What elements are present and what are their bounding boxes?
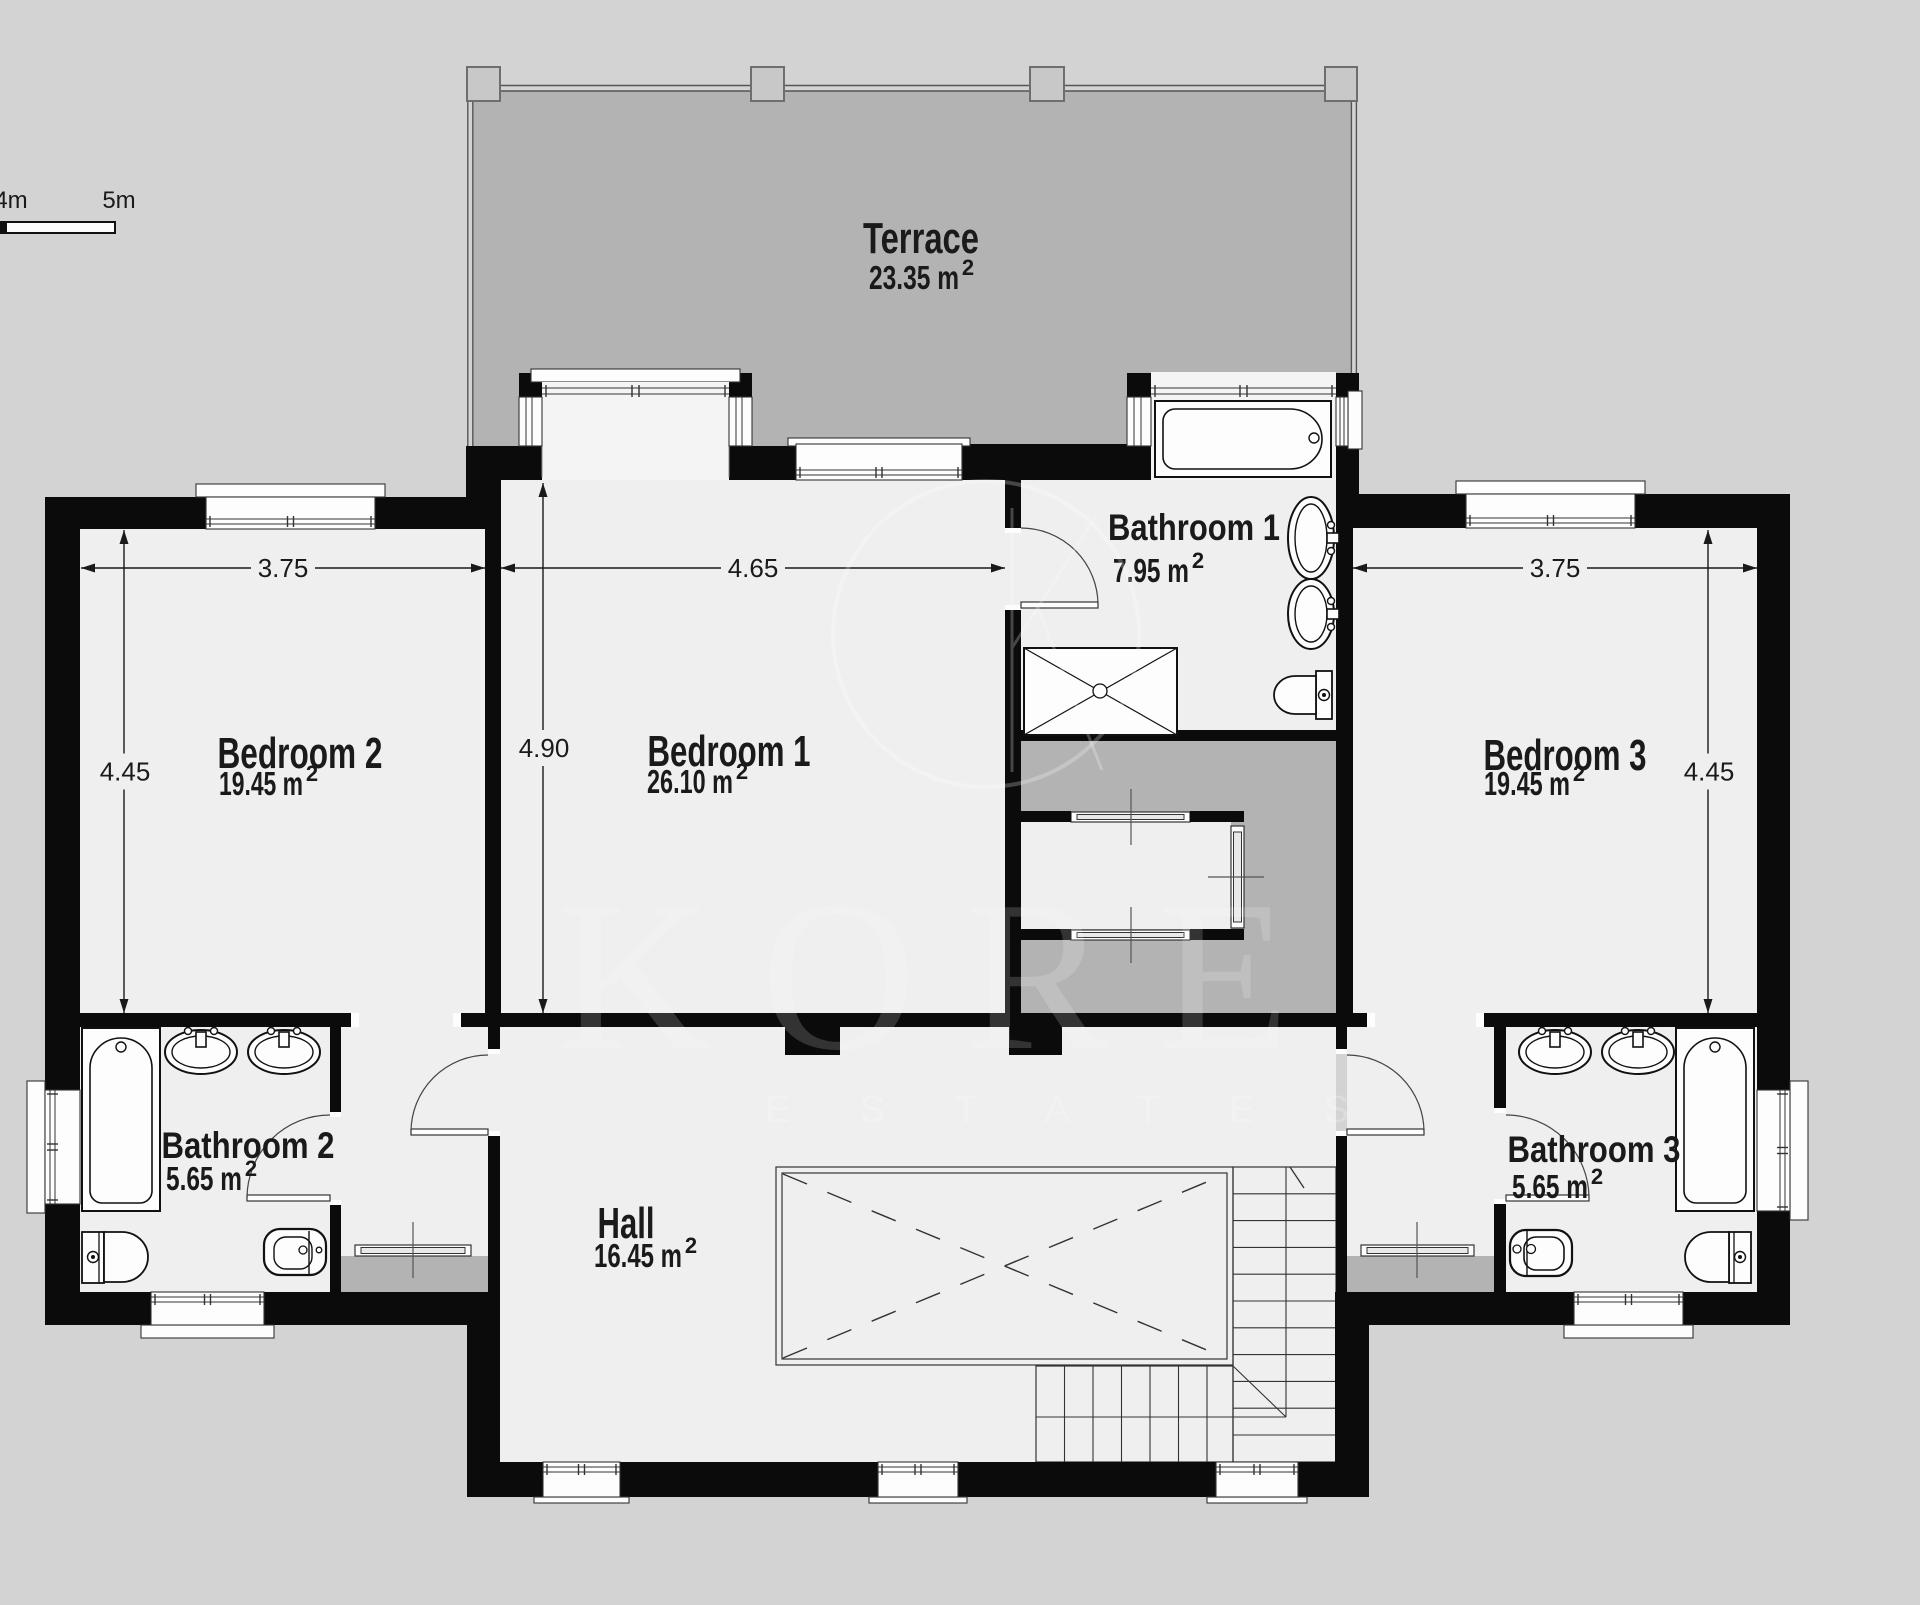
svg-text:26.10 m: 26.10 m xyxy=(647,763,733,800)
svg-text:2: 2 xyxy=(1192,548,1204,573)
svg-text:2: 2 xyxy=(685,1233,697,1258)
svg-text:3.75: 3.75 xyxy=(258,553,309,583)
svg-text:5m: 5m xyxy=(102,187,135,214)
svg-text:3.75: 3.75 xyxy=(1530,553,1581,583)
svg-text:4.90: 4.90 xyxy=(519,733,570,763)
svg-text:19.45 m: 19.45 m xyxy=(1484,765,1570,802)
svg-text:4m: 4m xyxy=(0,187,28,214)
svg-text:16.45 m: 16.45 m xyxy=(594,1237,682,1274)
svg-text:23.35 m: 23.35 m xyxy=(869,259,959,296)
svg-text:4.45: 4.45 xyxy=(1684,757,1735,787)
svg-text:2: 2 xyxy=(245,1156,257,1181)
svg-text:2: 2 xyxy=(962,255,974,280)
svg-text:ESTATES: ESTATES xyxy=(765,1089,1415,1131)
svg-text:4.45: 4.45 xyxy=(100,757,151,787)
svg-text:2: 2 xyxy=(736,759,748,784)
svg-text:4.65: 4.65 xyxy=(728,553,779,583)
svg-text:2: 2 xyxy=(1573,761,1585,786)
svg-text:Bathroom 1: Bathroom 1 xyxy=(1108,507,1280,548)
svg-text:2: 2 xyxy=(306,761,318,786)
svg-text:2: 2 xyxy=(1591,1164,1603,1189)
svg-text:5.65 m: 5.65 m xyxy=(166,1160,242,1197)
svg-text:5.65 m: 5.65 m xyxy=(1512,1168,1588,1205)
svg-text:19.45 m: 19.45 m xyxy=(219,765,303,802)
